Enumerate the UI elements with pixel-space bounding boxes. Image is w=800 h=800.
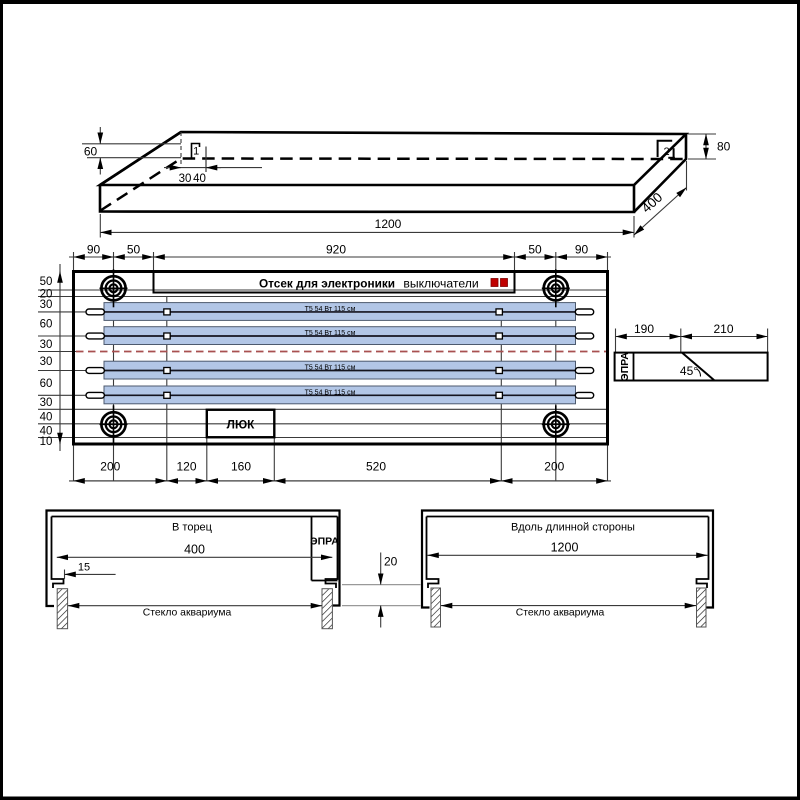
svg-text:60: 60 [40, 319, 53, 331]
svg-text:Стекло аквариума: Стекло аквариума [143, 608, 232, 619]
svg-text:ЭПРА: ЭПРА [310, 536, 339, 548]
svg-text:400: 400 [184, 542, 205, 556]
svg-text:90: 90 [87, 243, 101, 257]
svg-text:10: 10 [40, 436, 53, 448]
svg-text:160: 160 [231, 460, 251, 474]
svg-text:Т5 54 Вт 115 см: Т5 54 Вт 115 см [305, 330, 356, 337]
svg-text:Т5 54 Вт 115 см: Т5 54 Вт 115 см [305, 390, 356, 397]
svg-text:80: 80 [717, 140, 731, 154]
svg-text:1: 1 [193, 145, 199, 157]
svg-text:40: 40 [40, 412, 53, 424]
svg-text:40: 40 [193, 173, 206, 185]
svg-text:Т5 54 Вт 115 см: Т5 54 Вт 115 см [305, 365, 356, 372]
svg-text:Стекло аквариума: Стекло аквариума [516, 608, 605, 619]
svg-text:90: 90 [575, 243, 589, 257]
svg-text:15: 15 [78, 561, 90, 573]
svg-text:190: 190 [634, 322, 654, 336]
svg-text:ЛЮК: ЛЮК [227, 417, 255, 431]
svg-text:1200: 1200 [551, 540, 579, 554]
svg-text:520: 520 [366, 460, 386, 474]
svg-text:60: 60 [84, 144, 98, 158]
svg-text:60: 60 [40, 378, 53, 390]
svg-text:30: 30 [40, 356, 53, 368]
svg-text:2: 2 [663, 146, 669, 158]
svg-text:120: 120 [176, 460, 196, 474]
svg-text:Вдоль длинной стороны: Вдоль длинной стороны [511, 521, 635, 533]
svg-text:30: 30 [40, 339, 53, 351]
svg-text:1200: 1200 [375, 217, 402, 231]
svg-text:30: 30 [40, 299, 53, 311]
svg-text:200: 200 [544, 460, 564, 474]
svg-text:20: 20 [384, 555, 398, 569]
svg-text:30: 30 [179, 173, 192, 185]
svg-text:45°: 45° [680, 364, 698, 378]
svg-text:выключатели: выключатели [403, 276, 478, 290]
svg-text:200: 200 [100, 460, 120, 474]
svg-text:50: 50 [127, 243, 141, 257]
svg-text:50: 50 [528, 243, 542, 257]
svg-text:210: 210 [713, 322, 733, 336]
svg-text:Отсек для электроники: Отсек для электроники [259, 276, 395, 290]
svg-text:50: 50 [40, 276, 53, 288]
svg-text:30: 30 [40, 397, 53, 409]
svg-text:В торец: В торец [172, 521, 213, 533]
svg-text:920: 920 [326, 243, 346, 257]
svg-text:ЭПРА: ЭПРА [619, 352, 631, 381]
svg-text:Т5 54 Вт 115 см: Т5 54 Вт 115 см [305, 306, 356, 313]
